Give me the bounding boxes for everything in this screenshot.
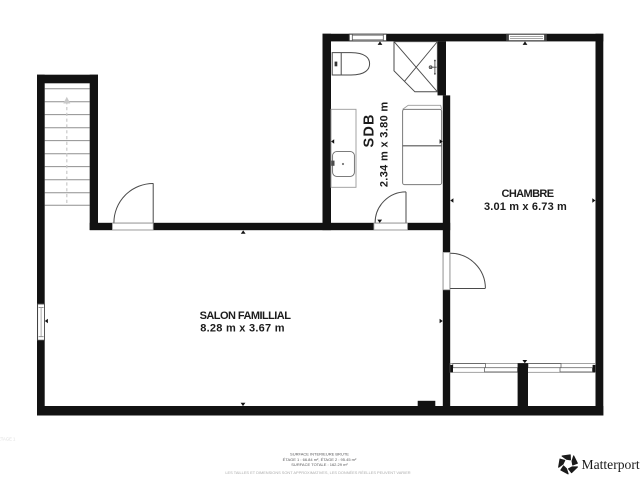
svg-text:Matterport: Matterport [582, 457, 640, 472]
svg-text:SURFACE INTERIEURE BRUTE: SURFACE INTERIEURE BRUTE [290, 452, 349, 457]
svg-text:8.28 m x 3.67 m: 8.28 m x 3.67 m [200, 323, 284, 335]
svg-text:2.34 m x 3.80 m: 2.34 m x 3.80 m [378, 101, 390, 187]
svg-text:LES TAILLES ET DIMENSIONS SONT: LES TAILLES ET DIMENSIONS SONT APPROXIMA… [225, 470, 410, 475]
svg-text:SALON FAMILLIAL: SALON FAMILLIAL [200, 310, 292, 322]
svg-text:SDB: SDB [362, 113, 378, 147]
svg-text:SURFACE TOTALE : 162.29 m²: SURFACE TOTALE : 162.29 m² [291, 462, 348, 467]
svg-text:ÉTAGE 1: ÉTAGE 1 [0, 437, 16, 442]
svg-text:3.01 m x 6.73 m: 3.01 m x 6.73 m [484, 201, 567, 213]
svg-text:CHAMBRE: CHAMBRE [501, 188, 553, 200]
